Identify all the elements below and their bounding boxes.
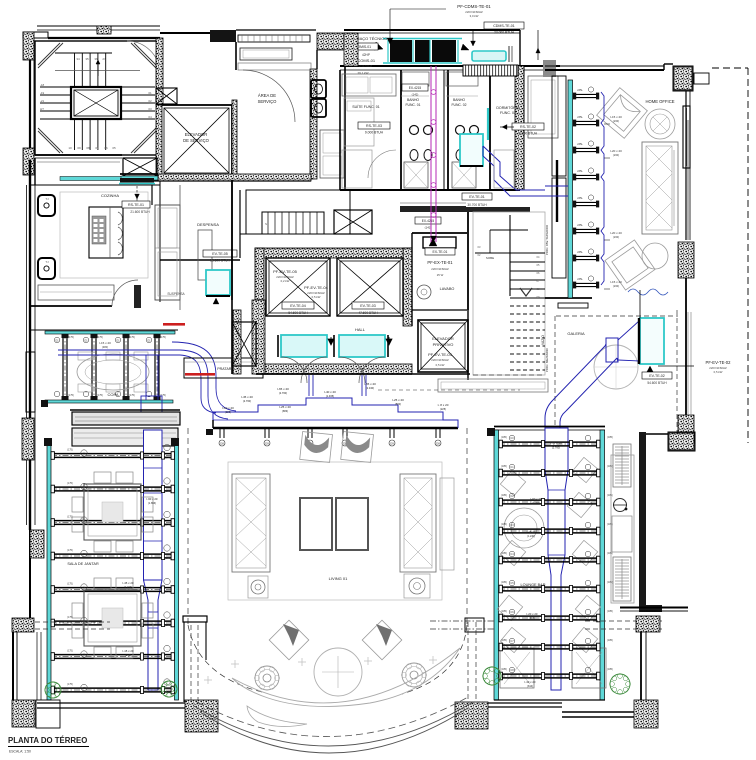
svg-text:LAVABO: LAVABO — [440, 287, 455, 291]
svg-text:ESCALA: 1:50: ESCALA: 1:50 — [9, 750, 31, 754]
svg-text:(185): (185) — [501, 581, 507, 584]
svg-text:(175): (175) — [129, 394, 135, 397]
svg-text:SUÍTE FUNC. 01: SUÍTE FUNC. 01 — [352, 105, 380, 109]
svg-text:(2.760): (2.760) — [243, 399, 251, 403]
svg-text:PF-CDMS-TE-01: PF-CDMS-TE-01 — [457, 4, 491, 9]
svg-text:(2.340): (2.340) — [366, 386, 374, 390]
svg-text:COPA: COPA — [107, 392, 118, 397]
svg-text:I-15 x 20: I-15 x 20 — [123, 649, 134, 653]
svg-text:235L: 235L — [577, 278, 583, 281]
svg-text:PRIVATIVO: PRIVATIVO — [433, 342, 454, 347]
svg-text:0,5 kW: 0,5 kW — [312, 295, 321, 299]
svg-text:13.600 BTUH: 13.600 BTUH — [210, 259, 231, 263]
svg-text:I-25 x 20: I-25 x 20 — [279, 405, 291, 409]
svg-text:235L: 235L — [577, 224, 583, 227]
svg-text:(185): (185) — [501, 523, 507, 526]
svg-text:PF-EV-TE-03: PF-EV-TE-03 — [428, 352, 453, 357]
svg-text:(185): (185) — [501, 436, 507, 439]
svg-text:TJ: TJ — [45, 260, 49, 264]
svg-text:(185): (185) — [607, 465, 613, 468]
svg-text:D8: D8 — [436, 442, 440, 446]
svg-text:02: 02 — [148, 99, 152, 103]
svg-text:PROJ. MEZANINO: PROJ. MEZANINO — [545, 347, 549, 372]
svg-text:(225): (225) — [225, 410, 231, 414]
svg-text:(1.240): (1.240) — [527, 535, 535, 538]
svg-text:(185): (185) — [501, 465, 507, 468]
svg-text:(175): (175) — [129, 336, 135, 339]
svg-text:EV-TE-04: EV-TE-04 — [290, 304, 306, 308]
svg-text:(142): (142) — [412, 93, 419, 97]
svg-text:220V/1F60HZ: 220V/1F60HZ — [431, 358, 449, 362]
svg-text:-19: -19 — [40, 91, 45, 95]
svg-text:DESPENSA: DESPENSA — [197, 222, 219, 227]
svg-text:0,2 kW: 0,2 kW — [281, 279, 290, 283]
svg-text:9.000 BTUH: 9.000 BTUH — [365, 131, 384, 135]
svg-text:DORMITÓRIO: DORMITÓRIO — [496, 105, 520, 110]
svg-text:(185): (185) — [607, 639, 613, 642]
svg-text:EX-4215: EX-4215 — [409, 86, 422, 90]
svg-text:I-20 x 20: I-20 x 20 — [527, 612, 538, 616]
svg-text:0,5 kW: 0,5 kW — [436, 363, 445, 367]
svg-text:34: 34 — [76, 57, 80, 61]
svg-text:I-45 x 20: I-45 x 20 — [241, 395, 253, 399]
svg-text:I-15 x 20: I-15 x 20 — [99, 341, 111, 345]
svg-text:PF-EV-TE-04: PF-EV-TE-04 — [304, 285, 329, 290]
svg-text:03: 03 — [148, 107, 152, 111]
svg-text:(230): (230) — [613, 119, 619, 123]
svg-text:GALERIA: GALERIA — [567, 331, 585, 336]
svg-text:ÁREA DE: ÁREA DE — [258, 93, 276, 98]
svg-text:23.000 BTUH: 23.000 BTUH — [494, 31, 515, 35]
svg-text:SERVIÇO: SERVIÇO — [258, 99, 278, 104]
svg-text:08: 08 — [86, 146, 90, 150]
svg-text:RS-TE-02: RS-TE-02 — [520, 125, 536, 129]
svg-text:(185): (185) — [501, 552, 507, 555]
svg-text:235L: 235L — [577, 251, 583, 254]
svg-text:235L: 235L — [577, 89, 583, 92]
svg-text:(225): (225) — [440, 407, 446, 411]
svg-text:235L: 235L — [577, 143, 583, 146]
svg-text:42HP: 42HP — [362, 53, 370, 57]
svg-text:I-60 x 20: I-60 x 20 — [147, 497, 158, 501]
svg-text:21.600 BTUH: 21.600 BTUH — [130, 210, 150, 214]
svg-text:-21: -21 — [40, 99, 45, 103]
svg-text:-18: -18 — [40, 83, 45, 87]
svg-text:FUNC. 01: FUNC. 01 — [405, 103, 420, 107]
svg-text:(175): (175) — [160, 394, 166, 397]
svg-text:ELEVADOR: ELEVADOR — [185, 132, 208, 137]
svg-text:EV-TE-02: EV-TE-02 — [649, 374, 665, 378]
svg-text:HT: HT — [40, 107, 44, 111]
svg-text:(185): (185) — [607, 494, 613, 497]
svg-text:(175): (175) — [165, 457, 171, 460]
svg-text:3,0 kW: 3,0 kW — [470, 14, 479, 18]
svg-text:235L: 235L — [577, 197, 583, 200]
svg-text:(2.760): (2.760) — [552, 446, 560, 450]
svg-text:35: 35 — [85, 57, 89, 61]
svg-text:HOME OFFICE: HOME OFFICE — [645, 99, 674, 104]
svg-text:(185): (185) — [607, 668, 613, 671]
svg-text:EV-TE-03: EV-TE-03 — [360, 304, 376, 308]
svg-text:EV-TE-01: EV-TE-01 — [469, 195, 485, 199]
svg-text:I-20 x 20: I-20 x 20 — [610, 231, 622, 235]
svg-text:07: 07 — [95, 146, 99, 150]
svg-text:BANHO: BANHO — [407, 98, 419, 102]
svg-text:(1.219): (1.219) — [124, 586, 132, 589]
svg-text:(230): (230) — [613, 284, 619, 288]
svg-text:PLANTA DO TÉRREO: PLANTA DO TÉRREO — [8, 736, 87, 745]
svg-text:(688): (688) — [529, 617, 535, 620]
svg-text:(175): (175) — [67, 683, 73, 686]
svg-text:CDMS-TE-01: CDMS-TE-01 — [493, 24, 515, 28]
svg-text:I-70 x 20: I-70 x 20 — [550, 441, 562, 445]
svg-text:(175): (175) — [67, 549, 73, 552]
svg-text:EV-TE-05: EV-TE-05 — [212, 252, 228, 256]
svg-text:D9: D9 — [265, 442, 269, 446]
svg-text:I-65 x 20: I-65 x 20 — [277, 387, 289, 391]
svg-text:(175): (175) — [67, 650, 73, 653]
svg-text:29,1 kW: 29,1 kW — [357, 71, 368, 75]
svg-text:I-20 x 20: I-20 x 20 — [610, 149, 622, 153]
svg-text:(175): (175) — [165, 524, 171, 527]
svg-text:(185): (185) — [501, 610, 507, 613]
svg-text:27: 27 — [102, 57, 106, 61]
svg-text:(175): (175) — [68, 394, 74, 397]
svg-text:(175): (175) — [67, 449, 73, 452]
svg-text:I-25 x 20: I-25 x 20 — [392, 398, 404, 402]
svg-text:PROJ. PAV. SUPERIOR: PROJ. PAV. SUPERIOR — [545, 225, 549, 255]
svg-text:PF-EV-TE-05: PF-EV-TE-05 — [273, 269, 298, 274]
svg-text:D8: D8 — [220, 442, 224, 446]
svg-text:SALA DE JANTAR: SALA DE JANTAR — [67, 562, 99, 566]
svg-text:235L: 235L — [577, 170, 583, 173]
svg-text:DE SERVIÇO: DE SERVIÇO — [183, 138, 209, 143]
svg-text:10: 10 — [68, 146, 72, 150]
svg-text:36: 36 — [94, 57, 98, 61]
svg-text:09: 09 — [77, 146, 81, 150]
svg-text:(230): (230) — [613, 235, 619, 239]
svg-text:(185): (185) — [501, 639, 507, 642]
svg-text:(185): (185) — [607, 436, 613, 439]
svg-text:54.600 BTUH: 54.600 BTUH — [288, 311, 308, 315]
svg-text:(2.760): (2.760) — [279, 391, 287, 395]
svg-text:(248): (248) — [125, 654, 131, 657]
svg-text:I-10 x 20: I-10 x 20 — [222, 406, 234, 410]
svg-text:(175): (175) — [165, 624, 171, 627]
svg-text:54.600 BTUH: 54.600 BTUH — [647, 381, 667, 385]
svg-text:(185): (185) — [501, 668, 507, 671]
svg-text:VAZIO: VAZIO — [541, 335, 545, 345]
svg-text:I-40 x 20: I-40 x 20 — [324, 390, 336, 394]
svg-text:25 W: 25 W — [437, 273, 444, 277]
svg-text:I-45 x 20: I-45 x 20 — [123, 581, 134, 585]
svg-text:SUSPENSA: SUSPENSA — [167, 292, 185, 296]
svg-text:(175): (175) — [165, 557, 171, 560]
svg-text:I-60 x 20: I-60 x 20 — [531, 497, 542, 501]
svg-text:(2.200): (2.200) — [532, 502, 540, 505]
svg-text:(175): (175) — [67, 482, 73, 485]
svg-text:(175): (175) — [67, 583, 73, 586]
svg-text:04: 04 — [148, 115, 152, 119]
svg-text:S: S — [265, 222, 267, 226]
svg-text:I-15 x 20: I-15 x 20 — [610, 115, 622, 119]
svg-text:(175): (175) — [68, 336, 74, 339]
svg-text:RS-TE-03: RS-TE-03 — [366, 124, 382, 128]
svg-text:ELEVADOR: ELEVADOR — [432, 336, 454, 341]
svg-text:(185): (185) — [607, 610, 613, 613]
svg-text:LIVING 01: LIVING 01 — [329, 576, 348, 581]
svg-text:RS-TE-01: RS-TE-01 — [128, 203, 144, 207]
svg-text:(683): (683) — [282, 409, 288, 413]
svg-text:0,5 kW: 0,5 kW — [714, 370, 723, 374]
svg-text:(1.893): (1.893) — [148, 502, 156, 505]
svg-text:(480): (480) — [102, 345, 108, 349]
svg-text:(142): (142) — [425, 226, 432, 230]
svg-text:BANHO: BANHO — [453, 98, 465, 102]
svg-text:(175): (175) — [97, 394, 103, 397]
svg-text:47.600 BTUH: 47.600 BTUH — [358, 311, 378, 315]
svg-text:FUNC. 02: FUNC. 02 — [500, 111, 516, 115]
svg-text:220V/1F60HZ: 220V/1F60HZ — [431, 267, 449, 271]
svg-text:SOBE: SOBE — [486, 256, 494, 260]
svg-text:(1.465): (1.465) — [326, 394, 334, 398]
svg-text:(175): (175) — [165, 591, 171, 594]
svg-text:LOUNGE BAR: LOUNGE BAR — [521, 583, 546, 587]
svg-text:HALL: HALL — [355, 327, 366, 332]
svg-text:I-15 x 20: I-15 x 20 — [610, 280, 622, 284]
svg-text:PF-EV-TE-02: PF-EV-TE-02 — [706, 360, 732, 365]
svg-text:EX-4215: EX-4215 — [422, 219, 435, 223]
svg-text:TJ: TJ — [45, 197, 49, 201]
svg-text:(230): (230) — [613, 153, 619, 157]
svg-text:(344): (344) — [527, 685, 533, 688]
svg-text:(175): (175) — [165, 658, 171, 661]
svg-text:FUNC. 02: FUNC. 02 — [451, 103, 466, 107]
svg-text:(175): (175) — [165, 490, 171, 493]
svg-text:235L: 235L — [577, 116, 583, 119]
svg-text:D9: D9 — [390, 442, 394, 446]
svg-text:I-10 x 20: I-10 x 20 — [525, 680, 536, 684]
svg-text:05: 05 — [112, 146, 116, 150]
svg-text:9.200 BTUH: 9.200 BTUH — [519, 132, 538, 136]
svg-text:I-65 x 20: I-65 x 20 — [364, 382, 376, 386]
svg-text:COZINHA: COZINHA — [101, 193, 119, 198]
svg-text:I-45x20: I-45x20 — [527, 530, 536, 534]
svg-text:30.700 BTUH: 30.700 BTUH — [467, 203, 487, 207]
svg-text:(175): (175) — [160, 336, 166, 339]
svg-text:PF-EX-TE-01: PF-EX-TE-01 — [427, 260, 453, 265]
svg-text:(175): (175) — [97, 336, 103, 339]
svg-text:(185): (185) — [501, 494, 507, 497]
svg-text:(185): (185) — [607, 552, 613, 555]
svg-text:(185): (185) — [607, 581, 613, 584]
svg-text:01: 01 — [148, 91, 152, 95]
svg-text:I- 8 x 20: I- 8 x 20 — [438, 403, 449, 407]
svg-text:(800): (800) — [395, 402, 401, 406]
svg-text:EX-TE-01: EX-TE-01 — [433, 250, 448, 254]
svg-text:06: 06 — [104, 146, 108, 150]
